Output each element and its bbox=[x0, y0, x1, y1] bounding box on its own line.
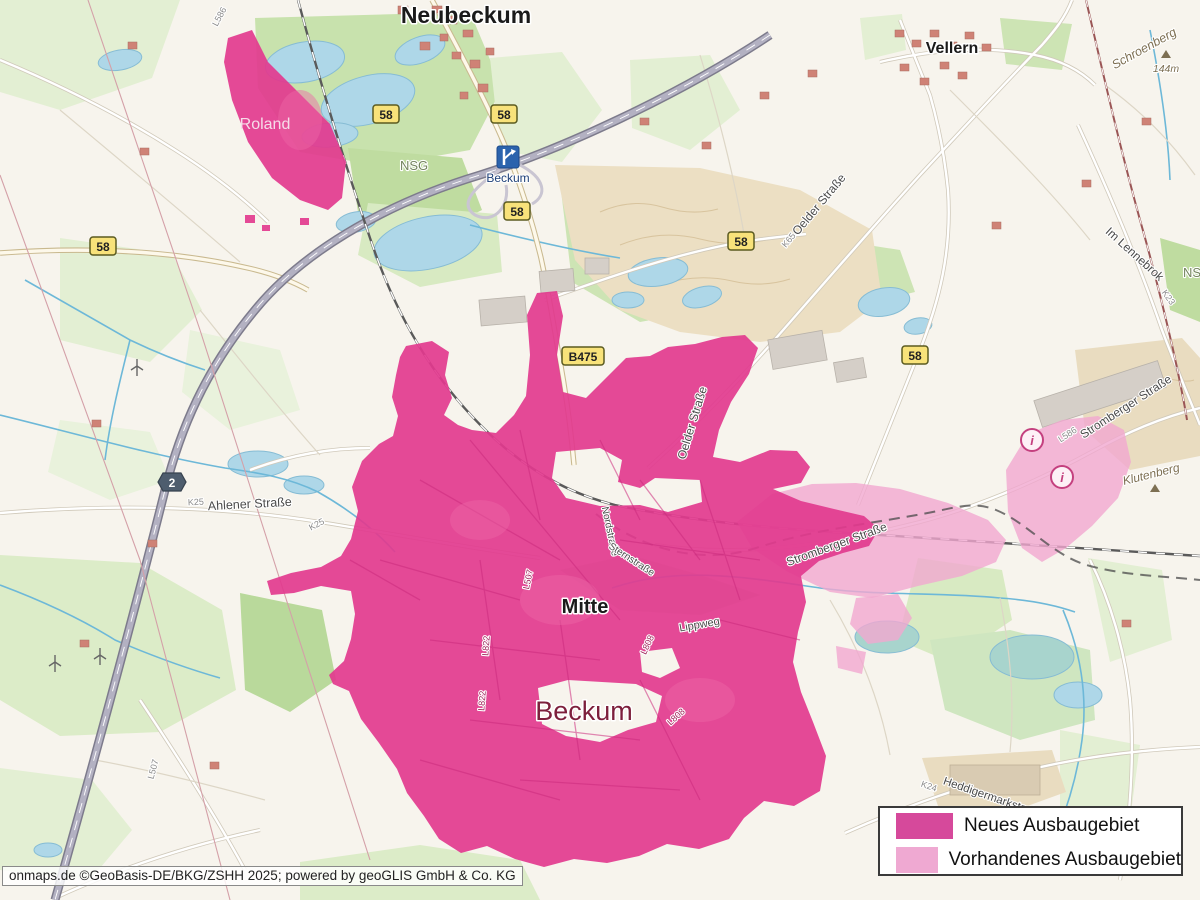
svg-text:i: i bbox=[1030, 433, 1034, 448]
svg-text:58: 58 bbox=[734, 235, 748, 249]
a2-shield: 2 bbox=[158, 473, 186, 491]
area-label-nsg-1: NSG bbox=[400, 158, 428, 173]
ref-label-l822-b: L822 bbox=[476, 690, 487, 711]
attribution-text: onmaps.de ©GeoBasis-DE/BKG/ZSHH 2025; po… bbox=[9, 868, 516, 883]
motorway-exit-icon bbox=[497, 146, 519, 168]
sight-icon: i bbox=[1021, 429, 1043, 451]
b58-shield: 58 bbox=[90, 237, 116, 255]
svg-text:2: 2 bbox=[169, 476, 176, 490]
map-attribution: onmaps.de ©GeoBasis-DE/BKG/ZSHH 2025; po… bbox=[2, 866, 523, 886]
legend-label-new: Neues Ausbaugebiet bbox=[964, 815, 1139, 837]
map-legend: Neues Ausbaugebiet Vorhandenes Ausbaugeb… bbox=[878, 806, 1183, 876]
b58-shield: 58 bbox=[504, 202, 530, 220]
place-label-roland: Roland bbox=[240, 116, 291, 133]
svg-text:58: 58 bbox=[497, 108, 511, 122]
place-label-neubeckum: Neubeckum bbox=[401, 2, 531, 28]
ref-label-k25-a: K25 bbox=[188, 497, 205, 508]
b58-shield: 58 bbox=[902, 346, 928, 364]
legend-row-existing: Vorhandenes Ausbaugebiet bbox=[880, 844, 1181, 876]
legend-row-new: Neues Ausbaugebiet bbox=[880, 810, 1181, 842]
svg-text:58: 58 bbox=[908, 349, 922, 363]
base-map: i i 58 58 58 58 bbox=[0, 0, 1200, 900]
svg-text:i: i bbox=[1060, 470, 1064, 485]
ref-label-l822-a: L822 bbox=[480, 635, 491, 656]
legend-label-existing: Vorhandenes Ausbaugebiet bbox=[949, 849, 1181, 871]
exit-label-beckum: Beckum bbox=[486, 171, 529, 185]
area-label-nsg-2: NSG bbox=[1183, 265, 1200, 280]
b58-shield: 58 bbox=[728, 232, 754, 250]
sight-icon: i bbox=[1051, 466, 1073, 488]
b58-shield: 58 bbox=[491, 105, 517, 123]
map-canvas[interactable]: i i 58 58 58 58 bbox=[0, 0, 1200, 900]
place-label-beckum: Beckum bbox=[535, 696, 633, 726]
svg-text:58: 58 bbox=[96, 240, 110, 254]
svg-text:58: 58 bbox=[379, 108, 393, 122]
legend-swatch-new bbox=[896, 813, 953, 839]
b475-shield: B475 bbox=[562, 347, 604, 365]
svg-text:B475: B475 bbox=[569, 350, 598, 364]
place-label-vellern: Vellern bbox=[926, 40, 978, 57]
legend-swatch-existing bbox=[896, 847, 938, 873]
place-label-mitte: Mitte bbox=[562, 596, 609, 618]
b58-shield: 58 bbox=[373, 105, 399, 123]
peak-elevation-schroenberg: 144m bbox=[1153, 63, 1180, 75]
svg-text:58: 58 bbox=[510, 205, 524, 219]
